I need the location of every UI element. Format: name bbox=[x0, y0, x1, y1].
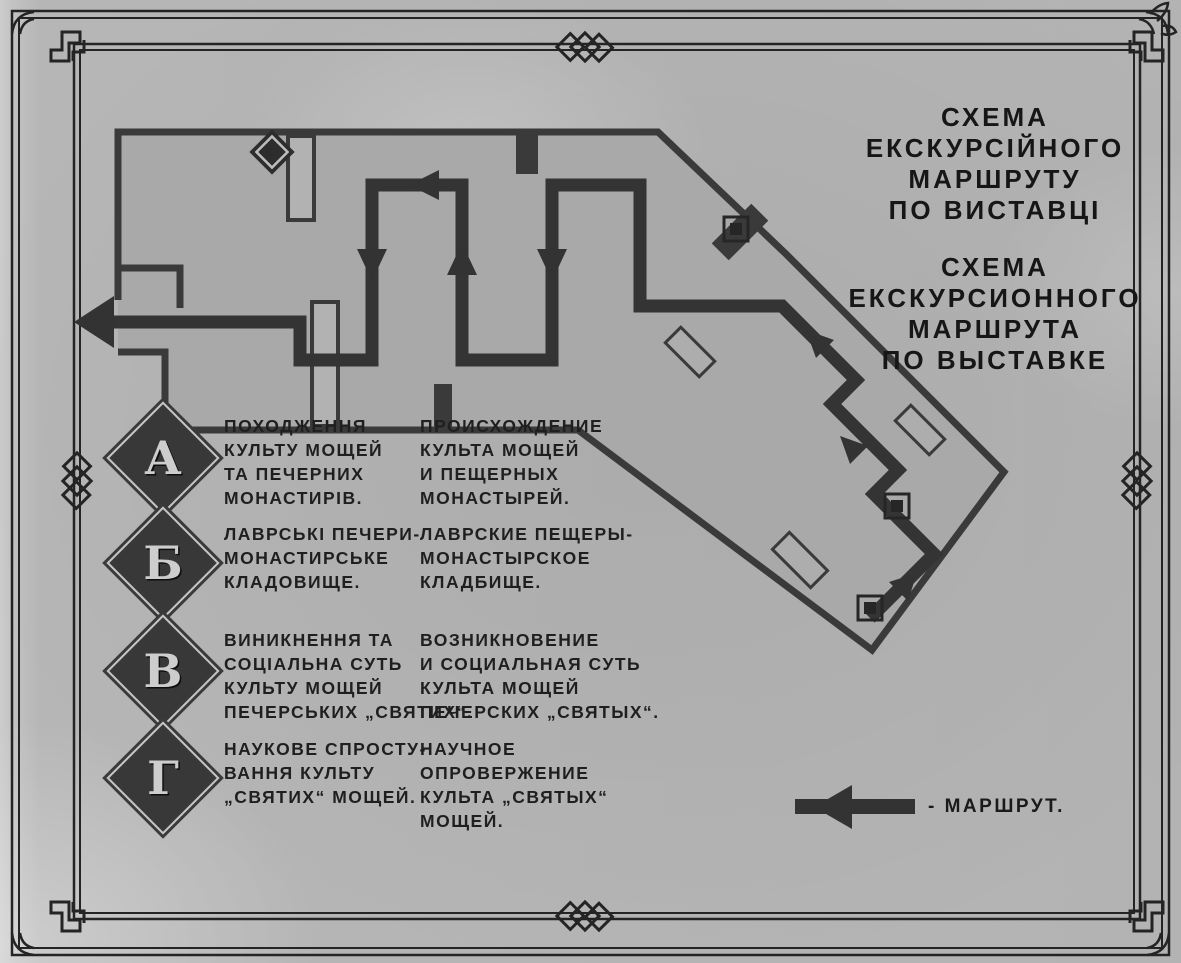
edge-knot-icon bbox=[1123, 453, 1151, 509]
corner-curl-icon bbox=[12, 933, 34, 955]
caption-line: ВАННЯ КУЛЬТУ bbox=[224, 761, 427, 785]
caption-line: КЛАДБИЩЕ. bbox=[420, 570, 634, 594]
legend-item-4-ru: НАУЧНОЕ ОПРОВЕРЖЕНИЕ КУЛЬТА „СВЯТЫХ“ МОЩ… bbox=[420, 737, 608, 833]
title-line: ЕКСКУРСІЙНОГО bbox=[835, 133, 1155, 164]
caption-line: МОНАСТЫРСКОЕ bbox=[420, 546, 634, 570]
legend-letter: Г bbox=[125, 740, 201, 816]
caption-line: МОЩЕЙ. bbox=[420, 809, 608, 833]
caption-line: МОНАСТЫРЕЙ. bbox=[420, 486, 603, 510]
edge-knot-icon bbox=[63, 453, 91, 509]
route-legend-label: - МАРШРУТ. bbox=[928, 796, 1065, 818]
legend-item-2-ua: ЛАВРСЬКІ ПЕЧЕРИ- МОНАСТИРСЬКЕ КЛАДОВИЩЕ. bbox=[224, 522, 421, 594]
caption-line: ПРОИСХОЖДЕНИЕ bbox=[420, 414, 603, 438]
edge-knot-icon bbox=[557, 33, 613, 61]
caption-line: КУЛЬТА МОЩЕЙ bbox=[420, 438, 603, 462]
caption-line: НАУЧНОЕ bbox=[420, 737, 608, 761]
title-line: СХЕМА bbox=[835, 252, 1155, 283]
caption-line: И ПЕЩЕРНЫХ bbox=[420, 462, 603, 486]
legend-letter: В bbox=[125, 633, 201, 709]
caption-line: ПОХОДЖЕННЯ bbox=[224, 414, 383, 438]
title-russian: СХЕМА ЕКСКУРСИОННОГО МАРШРУТА ПО ВЫСТАВК… bbox=[835, 252, 1155, 376]
route-legend-arrow-icon bbox=[814, 785, 852, 829]
title-line: МАРШРУТА bbox=[835, 314, 1155, 345]
caption-line: „СВЯТИХ“ МОЩЕЙ. bbox=[224, 785, 427, 809]
caption-line: ПЕЧЕРСКИХ „СВЯТЫХ“. bbox=[420, 700, 660, 724]
photographed-scheme-board: СХЕМА ЕКСКУРСІЙНОГО МАРШРУТУ ПО ВИСТАВЦІ… bbox=[0, 0, 1181, 963]
corner-curl-icon bbox=[1147, 933, 1169, 955]
caption-line: МОНАСТИРІВ. bbox=[224, 486, 383, 510]
caption-line: ВОЗНИКНОВЕНИЕ bbox=[420, 628, 660, 652]
legend-item-1-ua: ПОХОДЖЕННЯ КУЛЬТУ МОЩЕЙ ТА ПЕЧЕРНИХ МОНА… bbox=[224, 414, 383, 510]
legend-item-3-ru: ВОЗНИКНОВЕНИЕ И СОЦИАЛЬНАЯ СУТЬ КУЛЬТА М… bbox=[420, 628, 660, 724]
caption-line: НАУКОВЕ СПРОСТУ- bbox=[224, 737, 427, 761]
caption-line: КУЛЬТА МОЩЕЙ bbox=[420, 676, 660, 700]
legend-item-2-ru: ЛАВРСКИЕ ПЕЩЕРЫ- МОНАСТЫРСКОЕ КЛАДБИЩЕ. bbox=[420, 522, 634, 594]
caption-line: КЛАДОВИЩЕ. bbox=[224, 570, 421, 594]
caption-line: МОНАСТИРСЬКЕ bbox=[224, 546, 421, 570]
caption-line: КУЛЬТУ МОЩЕЙ bbox=[224, 438, 383, 462]
title-ukrainian: СХЕМА ЕКСКУРСІЙНОГО МАРШРУТУ ПО ВИСТАВЦІ bbox=[835, 102, 1155, 226]
title-line: ЕКСКУРСИОННОГО bbox=[835, 283, 1155, 314]
title-line: СХЕМА bbox=[835, 102, 1155, 133]
caption-line: И СОЦИАЛЬНАЯ СУТЬ bbox=[420, 652, 660, 676]
caption-line: ТА ПЕЧЕРНИХ bbox=[224, 462, 383, 486]
caption-line: ЛАВРСЬКІ ПЕЧЕРИ- bbox=[224, 522, 421, 546]
legend-letter: Б bbox=[125, 525, 201, 601]
edge-knot-icon bbox=[557, 902, 613, 930]
caption-line: КУЛЬТА „СВЯТЫХ“ bbox=[420, 785, 608, 809]
legend-item-1-ru: ПРОИСХОЖДЕНИЕ КУЛЬТА МОЩЕЙ И ПЕЩЕРНЫХ МО… bbox=[420, 414, 603, 510]
legend-letter: А bbox=[125, 420, 201, 496]
title-line: ПО ВИСТАВЦІ bbox=[835, 195, 1155, 226]
route-legend-symbol bbox=[795, 785, 915, 829]
partition bbox=[288, 136, 314, 220]
title-line: ПО ВЫСТАВКЕ bbox=[835, 345, 1155, 376]
legend-item-4-ua: НАУКОВЕ СПРОСТУ- ВАННЯ КУЛЬТУ „СВЯТИХ“ М… bbox=[224, 737, 427, 809]
caption-line: ОПРОВЕРЖЕНИЕ bbox=[420, 761, 608, 785]
corner-curl-icon bbox=[12, 12, 34, 34]
caption-line: ЛАВРСКИЕ ПЕЩЕРЫ- bbox=[420, 522, 634, 546]
title-line: МАРШРУТУ bbox=[835, 164, 1155, 195]
wall-stub bbox=[516, 132, 538, 174]
